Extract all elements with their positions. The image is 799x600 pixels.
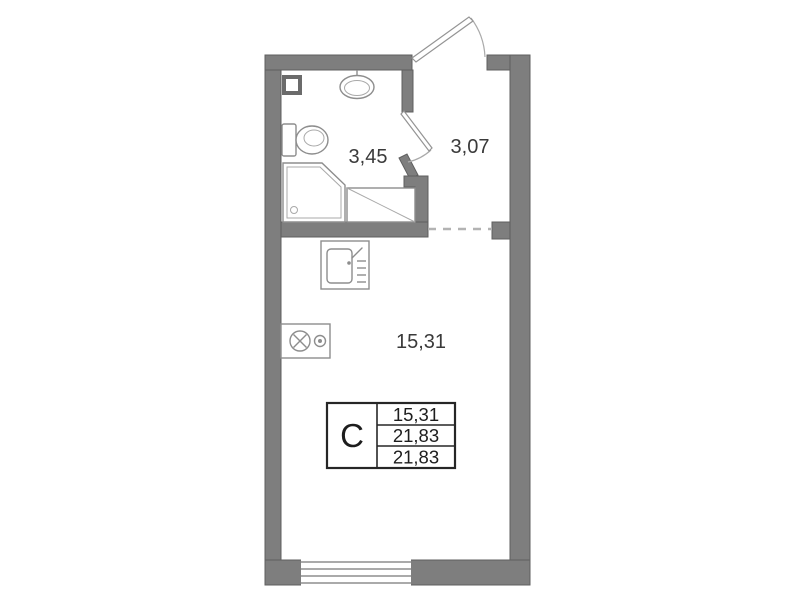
shower-icon bbox=[283, 163, 345, 222]
entrance-door-icon bbox=[412, 17, 485, 62]
wall-hallway-stub bbox=[492, 222, 510, 239]
floorplan-svg: 3,45 3,07 15,31 C 15,31 21,83 21,83 bbox=[0, 0, 799, 600]
legend-row-overall-area: 21,83 bbox=[393, 447, 439, 468]
legend-row-living-area: 15,31 bbox=[393, 404, 439, 425]
legend-row-total-area: 21,83 bbox=[393, 425, 439, 446]
toilet-icon bbox=[282, 124, 328, 156]
wall-bathroom-door-jamb bbox=[399, 154, 418, 179]
washbasin-icon bbox=[340, 70, 374, 99]
kitchen-sink-icon bbox=[321, 241, 369, 289]
washing-machine-area-icon bbox=[347, 188, 415, 222]
legend-type-label: C bbox=[340, 417, 364, 454]
window-icon bbox=[301, 559, 411, 586]
bathroom-area-label: 3,45 bbox=[349, 146, 388, 168]
room-area-label: 15,31 bbox=[396, 331, 446, 353]
hallway-area-label: 3,07 bbox=[451, 136, 490, 158]
wall-bathroom-right-upper bbox=[402, 70, 413, 112]
legend-table: C 15,31 21,83 21,83 bbox=[327, 403, 455, 468]
vent-shaft-icon bbox=[284, 77, 300, 93]
wall-left bbox=[265, 55, 281, 585]
floorplan-image: 3,45 3,07 15,31 C 15,31 21,83 21,83 bbox=[0, 0, 799, 600]
wall-right bbox=[510, 55, 530, 585]
stove-icon bbox=[281, 324, 330, 358]
wall-top bbox=[265, 55, 412, 70]
wall-bathroom-bottom bbox=[281, 222, 428, 237]
